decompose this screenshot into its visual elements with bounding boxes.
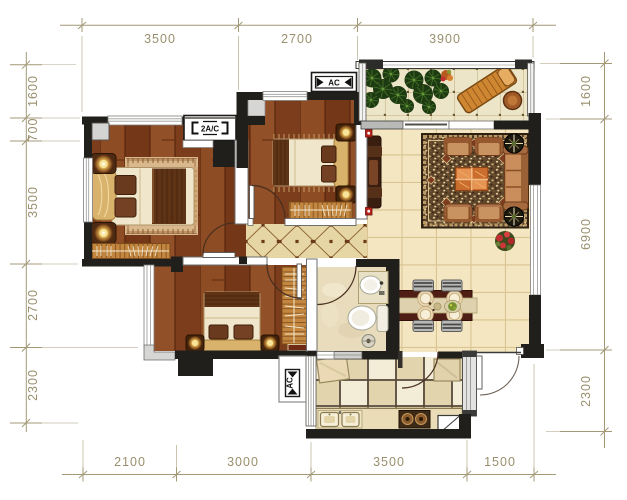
svg-text:2700: 2700 xyxy=(281,32,313,46)
svg-text:2A/C: 2A/C xyxy=(201,125,219,134)
svg-text:1600: 1600 xyxy=(579,75,593,107)
svg-text:2300: 2300 xyxy=(579,375,593,407)
svg-text:3500: 3500 xyxy=(26,186,40,218)
svg-text:2300: 2300 xyxy=(26,369,40,401)
svg-text:3500: 3500 xyxy=(373,455,405,469)
svg-text:6900: 6900 xyxy=(579,218,593,250)
svg-text:3000: 3000 xyxy=(227,455,259,469)
svg-text:2100: 2100 xyxy=(114,455,146,469)
svg-text:1600: 1600 xyxy=(26,75,40,107)
svg-text:3900: 3900 xyxy=(429,32,461,46)
svg-text:1500: 1500 xyxy=(484,455,516,469)
svg-text:3500: 3500 xyxy=(144,32,176,46)
svg-text:AC: AC xyxy=(286,377,295,389)
svg-text:AC: AC xyxy=(328,79,340,88)
svg-text:2700: 2700 xyxy=(26,289,40,321)
svg-text:700: 700 xyxy=(26,118,40,142)
